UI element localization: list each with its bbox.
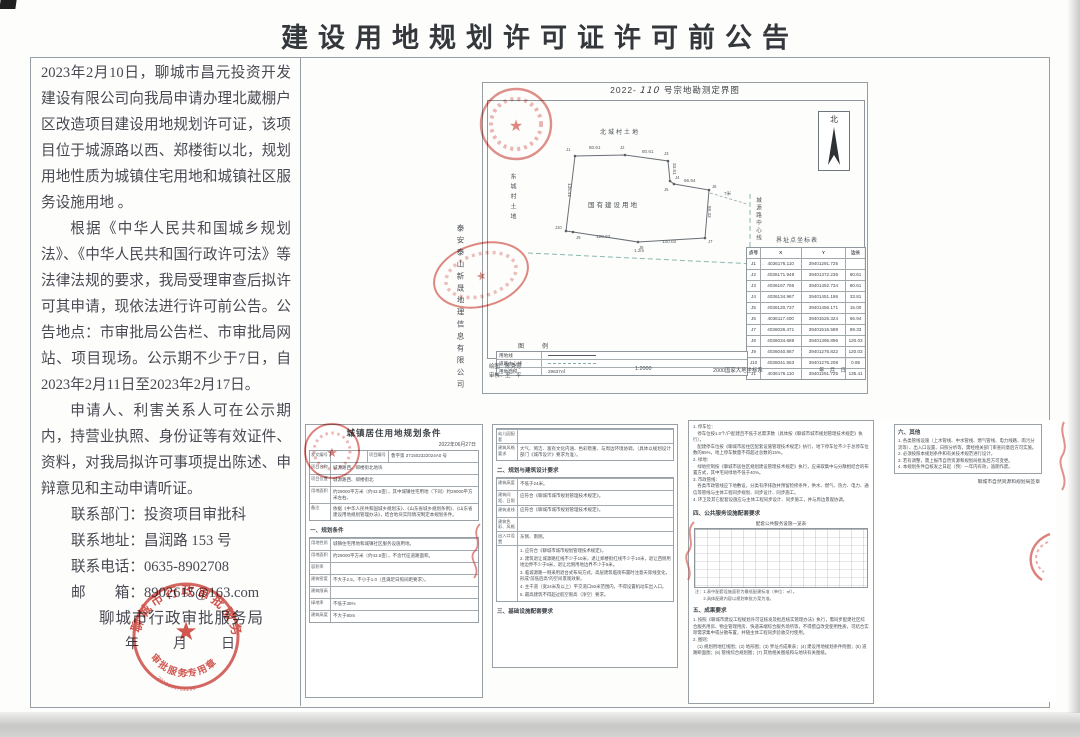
form-row: 建筑高度 不低于24米。 — [497, 478, 673, 490]
cell-side: 33.81 — [845, 292, 865, 302]
seal-number: （2） — [176, 669, 196, 678]
map-drafter: 绘图：陈秀芳 — [489, 362, 521, 370]
edge-length: 135.41 — [567, 183, 572, 197]
form-row: 建筑间距、日照 应符合《聊城市城市规划管理技术规定》。 — [497, 490, 673, 504]
requirement-item: 5. 最高建筑不得超过航空限高（净空）要求。 — [520, 592, 671, 599]
coord-table-body: J1 4036176.110 39401291.725 J2 4036171.9… — [747, 258, 865, 379]
map-date: 年 月 日 — [819, 366, 846, 374]
legend-label: 用地线 — [497, 352, 542, 359]
row-label: 容积率 — [310, 563, 331, 574]
paragraph: 4. 环卫及其它配套设施应与主体工程同步设计、同步施工，并与周边景观协调。 — [693, 497, 869, 504]
cell-point: J1 — [747, 259, 760, 269]
point-label: J3 — [664, 151, 668, 156]
cell-side: 89.33 — [845, 325, 865, 335]
row-value: 约29000平方米（约43.5亩），不含代征道路面积。 — [331, 551, 478, 562]
row-label: 用地面积 — [310, 551, 331, 562]
cell-point: J6 — [747, 314, 760, 324]
map-datum: 2000国家大地坐标系 — [713, 366, 763, 374]
paragraph: 各类市政管线应下地敷设，分类有序排放并预留检修条件，供水、燃气、热力、电力、通信… — [693, 483, 869, 496]
cell-point: J7 — [747, 325, 760, 335]
edge-length: 80.61 — [642, 149, 654, 154]
row-label: 幼儿园配套 — [497, 430, 518, 443]
legend-row: 用地面积 29637㎡ — [497, 367, 747, 375]
facilities-table-title: 配套公共服务设施一览表 — [689, 521, 873, 527]
row-value: 大气、简洁、富有文化内涵、色彩稳重、与周边环境协调，（具体以规划设计部门《城市设… — [518, 444, 673, 460]
edge-length: 66.94 — [684, 178, 696, 183]
cell-y: 39401396.896 — [801, 336, 846, 346]
row-label: 绿地率 — [310, 599, 331, 610]
row-value: 东侧、南侧。 — [518, 532, 673, 545]
cell-side: 15.00 — [845, 303, 865, 313]
coord-table-row: J9 4036040.867 39401276.822 120.03 — [747, 346, 865, 357]
cell-point: J9 — [747, 347, 760, 357]
row-value — [331, 563, 478, 574]
form-row: 建筑色彩、风格 — [497, 517, 673, 531]
seal-icon: ★ — [302, 421, 362, 481]
infrastructure-requirements-form: 1. 停车位： 停车位按1.0个/户配建且不低于总需求数（具体按《聊城市城市规划… — [688, 420, 874, 704]
cell-x: 4036026.471 — [760, 325, 801, 335]
notice-paragraph-3: 申请人、利害关系人可在公示期内，持营业执照、身份证等有效证件、资料，对我局拟许可… — [41, 398, 291, 502]
cell-point: J2 — [747, 270, 760, 280]
cell-x: 4036134.967 — [760, 292, 801, 302]
point-label: J4 — [675, 175, 679, 180]
coord-table-row: J1 4036176.110 39401291.725 — [747, 258, 865, 269]
project-no-label: 项目编号 — [368, 451, 389, 462]
edge-length: 80.61 — [589, 145, 601, 150]
svg-text:★: ★ — [474, 268, 488, 284]
contact-department: 联系部门：投资项目审批科 — [41, 502, 291, 528]
cell-y: 39401456.171 — [801, 303, 846, 313]
form-row: 用地性质 城镇住宅用地和城镇社区服务设施用地。 — [310, 538, 478, 550]
point-label: J9 — [576, 235, 580, 240]
label-state-owned-land: 国有建设用地 — [588, 199, 639, 209]
coord-table-header: 点号 X Y 边长 — [747, 248, 865, 258]
requirement-item: 1. 应符合《聊城市城市规划管理技术规定》。 — [520, 548, 671, 555]
paragraph: 1. 停车位： — [693, 424, 869, 431]
col-y: Y — [801, 248, 846, 258]
requirement-item: 4. 主干道（宽24米及以上）平交道口50米范围内，不得设置机动车出入口。 — [520, 584, 671, 591]
coord-table-row: J1 4036176.110 39401291.725 135.41 — [747, 368, 865, 379]
row-value — [518, 518, 673, 531]
cell-y: 39401516.589 — [801, 325, 846, 335]
label-road-centerline: 城源路中心线 — [754, 197, 762, 242]
authority-signature: 聊城市自然资源和规划局签章 — [880, 478, 1040, 485]
paragraph: 2. 绿地： — [693, 457, 869, 464]
official-seal-icon: 聊城市行政审批服务局 ★ 审批服务专用章 （2） 2019100702290 — [118, 576, 254, 700]
seal-fragment-icon — [1020, 532, 1052, 582]
svg-text:★: ★ — [509, 118, 523, 135]
row-label: 建筑色彩、风格 — [497, 518, 518, 531]
map-title-number: 110 — [640, 86, 661, 96]
requirement-item: 3. 临城源路一侧采用退台式布局方式，高层建筑临街布置时注意天际线变化，形成“前… — [520, 570, 671, 583]
form-row: 建筑密度 不大于2.5，不小于1.0（且满足日照间距要求）。 — [310, 574, 478, 586]
row-value: 不低于24米。 — [518, 479, 673, 490]
cell-side: 120.03 — [845, 347, 865, 357]
form-rows: 幼儿园配套 建筑风格要求 大气、简洁、富有文化内涵、色彩稳重、与周边环境协调，（… — [497, 429, 673, 460]
cell-side: 66.94 — [845, 314, 865, 324]
notice-paragraph-1: 2023年2月10日，聊城市昌元投资开发建设有限公司向我局申请办理北葳棚户区改造… — [41, 60, 291, 216]
row-value: 城镇住宅用地和城镇社区服务设施用地。 — [331, 539, 478, 550]
project-no-value: 鲁字第 371502322024A0 号 — [389, 451, 478, 462]
form-row: 绿地率 不低于35% — [310, 598, 478, 610]
cell-side: 120.03 — [845, 336, 865, 346]
requirement-paragraphs: 1. 停车位： 停车位按1.0个/户配建且不低于总需求数（具体按《聊城市城市规划… — [689, 421, 873, 506]
company-oval-seal-icon: ★ — [426, 230, 536, 320]
seal-star-icon: ★ — [174, 616, 197, 646]
col-point: 点号 — [747, 248, 760, 258]
cell-x: 4036176.110 — [760, 259, 801, 269]
design-requirements-form: 幼儿园配套 建筑风格要求 大气、简洁、富有文化内涵、色彩稳重、与周边环境协调，（… — [492, 424, 678, 668]
form-table: 幼儿园配套 建筑风格要求 大气、简洁、富有文化内涵、色彩稳重、与周边环境协调，（… — [496, 428, 674, 461]
point-label: J6 — [712, 184, 716, 189]
cell-x: 4036117.400 — [760, 314, 801, 324]
requirement-list: 1. 应符合《聊城市城市规划管理技术规定》。2. 建筑退让城源路红线不少于10米… — [518, 546, 673, 600]
coord-table-row: J6 4036117.400 39401525.324 66.94 — [747, 313, 865, 324]
map-title-prefix: 2022- — [610, 85, 637, 95]
coord-table-row: J3 4036167.766 39401452.734 80.61 — [747, 280, 865, 291]
section-heading: 一、规划条件 — [306, 523, 482, 537]
row-value: 约29000平方米（约43.5亩），其中城镇住宅用地（下同）约29000平方米左… — [331, 487, 478, 503]
cell-y: 39401291.725 — [801, 259, 846, 269]
paragraph: 停车位按1.0个/户配建且不低于总需求数（具体按《聊城市城市规划管理技术规定》执… — [693, 431, 869, 444]
boundary-coordinate-table: 点号 X Y 边长 J1 4036176.110 39401291.725 — [746, 247, 866, 380]
row-label: 建筑高度 — [310, 611, 331, 622]
form-row: 幼儿园配套 — [497, 429, 673, 443]
legend-row: 用地线 — [497, 352, 747, 359]
map-checker: 审核：王 平 — [489, 371, 521, 379]
cell-x: 4036120.737 — [760, 303, 801, 313]
row-label: 建筑退线 — [497, 506, 518, 517]
paragraph: 1. 按照《聊城市建设工程规划许可证核发及批后核实管理办法》执行，需同步配建社区… — [693, 617, 869, 637]
legend-symbol-solid-line — [542, 352, 747, 359]
svg-text:★: ★ — [326, 445, 338, 460]
paragraph: (1) 规划用地红线图；(2) 地形图；(3) 界址点成果表；(4) 建设用地规… — [693, 644, 869, 657]
cell-y: 39401451.186 — [801, 292, 846, 302]
requirement-item: 2. 建筑退让城源路红线不少于10米，退让郑楼街红线不少于10米，退让西侧用地边… — [520, 556, 671, 569]
col-side: 边长 — [845, 248, 865, 258]
seal-fragment-icon — [1056, 420, 1072, 492]
row-label: 建筑高度 — [497, 479, 518, 490]
cell-side: 80.61 — [845, 270, 865, 280]
cell-x: 4036041.563 — [760, 358, 801, 368]
row-value — [518, 430, 673, 443]
row-label: 出入口设置 — [497, 532, 518, 545]
seal-icon: ★ — [477, 85, 555, 163]
scan-bottom-edge — [0, 712, 1080, 737]
row-label: 建筑限高 — [310, 587, 331, 598]
cell-point: J3 — [747, 281, 760, 291]
map-title-suffix: 号宗地勘测定界图 — [664, 85, 740, 95]
cell-x: 4036176.110 — [760, 369, 801, 379]
section-heading: 四、公共服务设施配套要求 — [689, 506, 873, 520]
condition-rows: 用地性质 城镇住宅用地和城镇社区服务设施用地。 用地面积 约29000平方米（约… — [310, 538, 478, 622]
edge-length: 120.03 — [596, 234, 610, 239]
paragraph: 配建停车位按《聊城市居住区配套设施管理技术规定》执行，地下停车位不少于总停车位数… — [693, 444, 869, 457]
cell-y: 39401276.822 — [801, 347, 846, 357]
row-label: 建筑密度 — [310, 575, 331, 586]
section-heading: 三、基础设施配套要求 — [493, 604, 677, 618]
other-item: 1. 各类管线设施（上水管线、中水管线、燃气管线、电力线路、雨污分流等）、出入口… — [898, 438, 1038, 451]
other-item: 2. 必须按照本规划条件和有关技术规范进行设计。 — [898, 451, 1038, 458]
row-value — [331, 587, 478, 598]
cell-y: 39401452.734 — [801, 281, 846, 291]
label-east-village: 东城村土地 — [508, 173, 517, 223]
north-arrow-box: 北 — [818, 111, 850, 171]
form-row: 容积率 — [310, 562, 478, 574]
cell-point: J5 — [747, 303, 760, 313]
form-row: 用地面积 约29000平方米（约43.5亩），不含代征道路面积。 — [310, 550, 478, 562]
form-table: 建筑高度 不低于24米。 建筑间距、日照 应符合《聊城市城市规划管理技术规定》。… — [496, 477, 674, 601]
row-label: 建筑间距、日照 — [497, 491, 518, 504]
form-row: 用地面积 约29000平方米（约43.5亩），其中城镇住宅用地（下同）约2900… — [310, 486, 478, 503]
row-value: 依据《中华人民共和国城乡规划法》、《山东省城乡规划条例》、《山东省建设用地规划管… — [331, 504, 478, 520]
legend-title: 图 例 — [518, 341, 554, 350]
row-label: 用地性质 — [310, 539, 331, 550]
form-row: 建筑高度 不大于80m — [310, 610, 478, 622]
cell-y: 39401525.324 — [801, 314, 846, 324]
deliverable-paragraphs: 1. 按照《聊城市建设工程规划许可证核发及批后核实管理办法》执行，需同步配建社区… — [689, 617, 873, 660]
paragraph: 2. 图则： — [693, 637, 869, 644]
section-heading: 五、成果要求 — [689, 603, 873, 617]
scan-corner-mark — [0, 0, 17, 9]
row-value: 应符合《聊城市城市规划管理技术规定》。 — [518, 491, 673, 504]
other-requirements-box: 六、其他 1. 各类管线设施（上水管线、中水管线、燃气管线、电力线路、雨污分流等… — [894, 424, 1042, 474]
row-label: 建筑风格要求 — [497, 444, 518, 460]
cell-x: 4036171.948 — [760, 270, 801, 280]
cell-y: 39401372.236 — [801, 270, 846, 280]
coord-table-title: 界址点坐标表 — [776, 235, 818, 244]
row-label: 用地面积 — [310, 487, 331, 503]
cell-x: 4036040.867 — [760, 347, 801, 357]
label-north-village: 北城村土地 — [600, 127, 640, 136]
coord-table-row: J10 4036041.563 39401276.208 0.95 — [747, 357, 865, 368]
cell-side: 80.61 — [845, 281, 865, 291]
table-note: 2.具体配建内容以规划审批方案为准。 — [695, 596, 867, 602]
point-label: J1 — [566, 147, 570, 152]
form-rows: 建筑高度 不低于24米。 建筑间距、日照 应符合《聊城市城市规划管理技术规定》。… — [497, 478, 673, 545]
north-label: 北 — [819, 114, 849, 125]
legend-table: 用地线 道路中心线 用地面积 29637㎡ — [496, 351, 748, 376]
row-value: 不大于2.5，不小于1.0（且满足日照间距要求）。 — [331, 575, 478, 586]
map-scale: 1:2000 — [635, 366, 652, 372]
form-row: 备注 依据《中华人民共和国城乡规划法》、《山东省城乡规划条例》、《山东省建设用地… — [310, 503, 478, 520]
notice-text-column: 2023年2月10日，聊城市昌元投资开发建设有限公司向我局申请办理北葳棚户区改造… — [41, 60, 291, 658]
frame-divider — [300, 57, 301, 706]
seal-fragment-icon — [682, 520, 698, 582]
edge-length: 33.81 — [672, 163, 677, 175]
scan-right-edge — [1067, 0, 1080, 713]
form-row: 建筑退线 应符合《聊城市城市规划管理技术规定》。 — [497, 505, 673, 517]
coord-table-row: J5 4036120.737 39401456.171 15.00 — [747, 302, 865, 313]
cell-x: 4036034.689 — [760, 336, 801, 346]
form-row: 出入口设置 东侧、南侧。 — [497, 531, 673, 545]
coord-table-row: J4 4036134.967 39401451.186 33.81 — [747, 291, 865, 302]
point-label: J2 — [620, 145, 624, 150]
cell-point: J4 — [747, 292, 760, 302]
legend-row: 道路中心线 — [497, 359, 747, 367]
edge-gap: 7米 — [724, 191, 731, 197]
coord-table-row: J7 4036026.471 39401516.589 89.33 — [747, 324, 865, 335]
other-items: 1. 各类管线设施（上水管线、中水管线、燃气管线、电力线路、雨污分流等）、出入口… — [898, 438, 1038, 471]
point-label: J5 — [664, 187, 668, 192]
contact-address: 联系地址：昌润路 153 号 — [41, 528, 291, 554]
cell-side — [845, 259, 865, 269]
table-note: 注：1.表中配套设施面积为最低配建标准（单位：㎡）。 — [695, 589, 867, 595]
cell-side: 0.95 — [845, 358, 865, 368]
point-label: J8 — [639, 245, 643, 250]
seal-fragment-icon — [466, 522, 486, 580]
edge-length: 89.33 — [707, 206, 712, 218]
edge-length: 120.03 — [662, 239, 676, 244]
facilities-grid-table — [694, 528, 868, 588]
row-value: 不低于35% — [331, 599, 478, 610]
section-heading: 六、其他 — [898, 427, 1038, 438]
form-row: 建筑限高 — [310, 586, 478, 598]
col-x: X — [760, 248, 801, 258]
form-row: 建筑风格要求 大气、简洁、富有文化内涵、色彩稳重、与周边环境协调，（具体以规划设… — [497, 443, 673, 460]
coord-table-row: J2 4036171.948 39401372.236 80.61 — [747, 269, 865, 280]
cell-point: J8 — [747, 336, 760, 346]
scanned-announcement-page: 建设用地规划许可证许可前公告 2023年2月10日，聊城市昌元投资开发建设有限公… — [0, 0, 1080, 737]
section-heading: 二、规划与建筑设计要求 — [493, 463, 677, 477]
page-title: 建设用地规划许可证许可前公告 — [0, 16, 1080, 55]
notice-paragraph-2: 根据《中华人民共和国城乡规划法》、《中华人民共和国行政许可法》等法律法规的要求，… — [41, 216, 291, 398]
cell-side: 135.41 — [845, 369, 865, 379]
coord-table-row: J8 4036034.689 39401396.896 120.03 — [747, 335, 865, 346]
paragraph: 绿地控制按《聊城市居住区规划建设管理技术规定》执行，应采取集中与分散相结合的布置… — [693, 464, 869, 477]
row-label: 备注 — [310, 504, 331, 520]
north-arrow-icon — [820, 125, 848, 167]
cell-x: 4036167.766 — [760, 281, 801, 291]
form-row-notes: 1. 应符合《聊城市城市规划管理技术规定》。2. 建筑退让城源路红线不少于10米… — [497, 545, 673, 600]
point-label: J10 — [555, 225, 562, 230]
conditions-table: 用地性质 城镇住宅用地和城镇社区服务设施用地。 用地面积 约29000平方米（约… — [309, 537, 479, 623]
point-label: J7 — [708, 239, 712, 244]
other-item: 4. 本规划条件自核发之日起（预）一年内有效，逾期作废。 — [898, 464, 1038, 471]
row-value: 不大于80m — [331, 611, 478, 622]
row-value: 应符合《聊城市城市规划管理技术规定》。 — [518, 506, 673, 517]
row-label — [497, 546, 518, 600]
